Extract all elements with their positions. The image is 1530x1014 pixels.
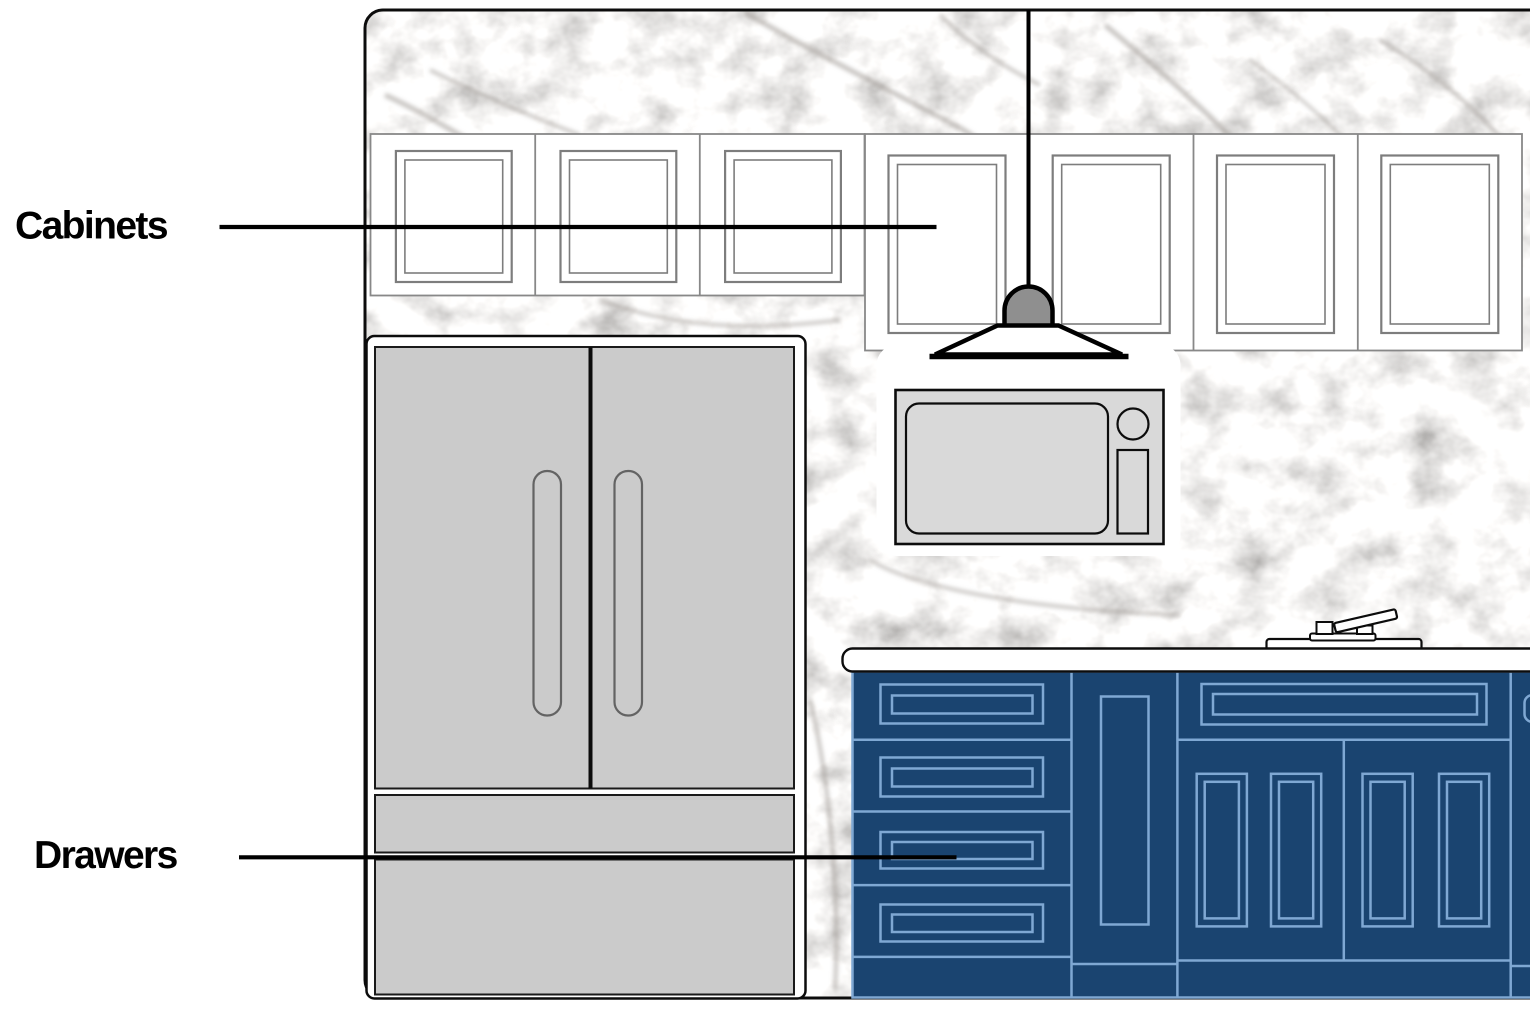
svg-text:Cabinets: Cabinets bbox=[15, 205, 168, 248]
svg-text:Drawers: Drawers bbox=[34, 834, 178, 877]
